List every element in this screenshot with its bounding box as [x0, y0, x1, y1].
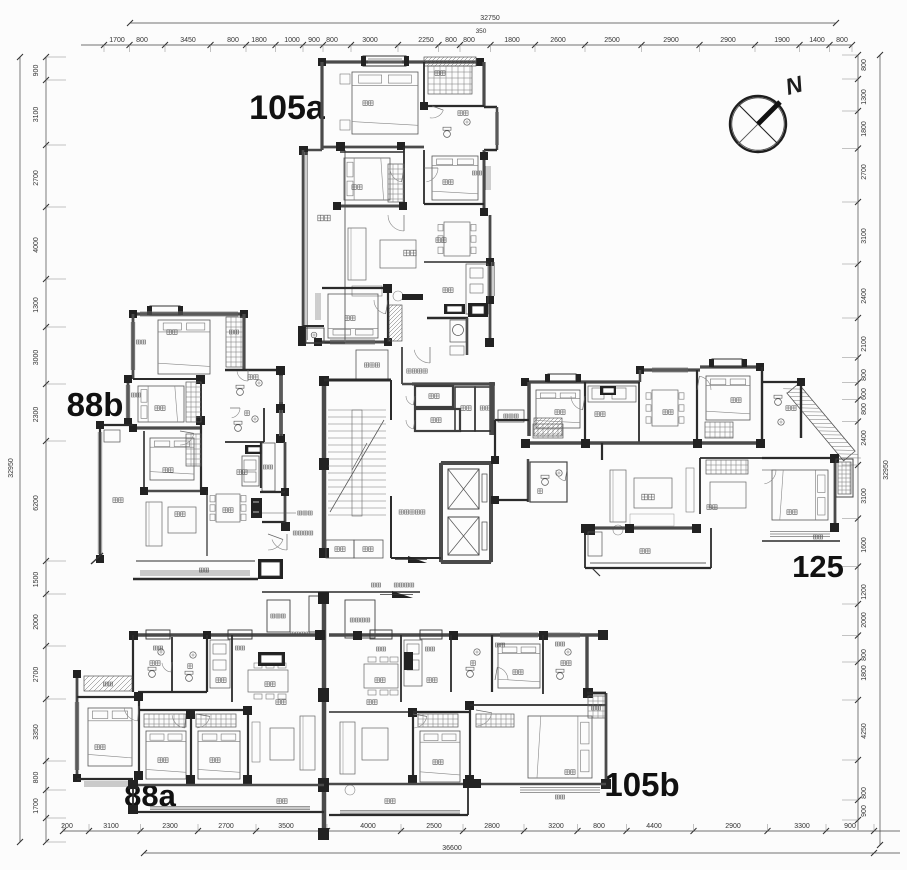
svg-text:3350: 3350	[33, 724, 40, 740]
svg-text:2700: 2700	[861, 164, 868, 180]
svg-text:900: 900	[861, 805, 868, 817]
svg-text:4000: 4000	[33, 237, 40, 253]
svg-text:1000: 1000	[284, 37, 300, 44]
svg-text:2900: 2900	[720, 37, 736, 44]
svg-text:3450: 3450	[180, 37, 196, 44]
svg-text:3100: 3100	[861, 488, 868, 504]
svg-text:2000: 2000	[33, 614, 40, 630]
svg-text:2700: 2700	[33, 667, 40, 683]
svg-text:4000: 4000	[360, 823, 376, 830]
svg-text:3100: 3100	[861, 228, 868, 244]
svg-text:3500: 3500	[278, 823, 294, 830]
svg-text:4400: 4400	[646, 823, 662, 830]
svg-text:800: 800	[861, 649, 868, 661]
svg-text:2500: 2500	[426, 823, 442, 830]
svg-text:800: 800	[593, 823, 605, 830]
svg-text:800: 800	[326, 37, 338, 44]
svg-text:6200: 6200	[33, 495, 40, 511]
svg-text:800: 800	[33, 772, 40, 784]
svg-text:2700: 2700	[33, 170, 40, 186]
svg-text:800: 800	[227, 37, 239, 44]
svg-text:1600: 1600	[861, 537, 868, 553]
svg-text:2000: 2000	[861, 612, 868, 628]
svg-text:1800: 1800	[504, 37, 520, 44]
svg-text:1800: 1800	[861, 665, 868, 681]
svg-text:4250: 4250	[861, 723, 868, 739]
svg-text:800: 800	[136, 37, 148, 44]
svg-text:2900: 2900	[663, 37, 679, 44]
svg-text:1800: 1800	[861, 121, 868, 137]
svg-text:2400: 2400	[861, 430, 868, 446]
svg-text:1700: 1700	[33, 798, 40, 814]
svg-text:1500: 1500	[33, 572, 40, 588]
svg-text:32750: 32750	[480, 15, 500, 22]
svg-text:1300: 1300	[33, 297, 40, 313]
svg-text:900: 900	[844, 823, 856, 830]
svg-text:800: 800	[861, 369, 868, 381]
svg-text:2700: 2700	[218, 823, 234, 830]
svg-text:2400: 2400	[861, 288, 868, 304]
svg-text:125: 125	[792, 549, 844, 584]
svg-text:3100: 3100	[33, 107, 40, 123]
svg-text:3100: 3100	[103, 823, 119, 830]
svg-text:2800: 2800	[484, 823, 500, 830]
svg-text:800: 800	[861, 59, 868, 71]
svg-text:105a: 105a	[249, 89, 326, 127]
svg-text:3000: 3000	[33, 350, 40, 366]
svg-text:3000: 3000	[362, 37, 378, 44]
svg-text:350: 350	[476, 28, 487, 35]
svg-text:2600: 2600	[550, 37, 566, 44]
svg-text:2500: 2500	[604, 37, 620, 44]
svg-text:800: 800	[861, 403, 868, 415]
svg-text:1300: 1300	[861, 89, 868, 105]
svg-text:1700: 1700	[109, 37, 125, 44]
svg-text:36600: 36600	[442, 845, 462, 852]
svg-text:900: 900	[308, 37, 320, 44]
svg-text:2300: 2300	[33, 407, 40, 423]
svg-text:2100: 2100	[861, 336, 868, 352]
svg-text:1200: 1200	[861, 584, 868, 600]
svg-text:1800: 1800	[251, 37, 267, 44]
svg-text:2300: 2300	[162, 823, 178, 830]
svg-text:800: 800	[861, 787, 868, 799]
svg-text:900: 900	[33, 65, 40, 77]
svg-text:600: 600	[861, 388, 868, 400]
svg-text:1400: 1400	[809, 37, 825, 44]
svg-text:105b: 105b	[604, 766, 679, 803]
svg-text:2900: 2900	[725, 823, 741, 830]
svg-text:32950: 32950	[8, 458, 15, 478]
svg-text:3200: 3200	[548, 823, 564, 830]
svg-text:2250: 2250	[418, 37, 434, 44]
svg-text:1900: 1900	[774, 37, 790, 44]
svg-text:32950: 32950	[883, 460, 890, 480]
svg-text:3300: 3300	[794, 823, 810, 830]
svg-text:800: 800	[463, 37, 475, 44]
svg-text:800: 800	[836, 37, 848, 44]
svg-text:88b: 88b	[67, 386, 124, 423]
svg-text:800: 800	[445, 37, 457, 44]
